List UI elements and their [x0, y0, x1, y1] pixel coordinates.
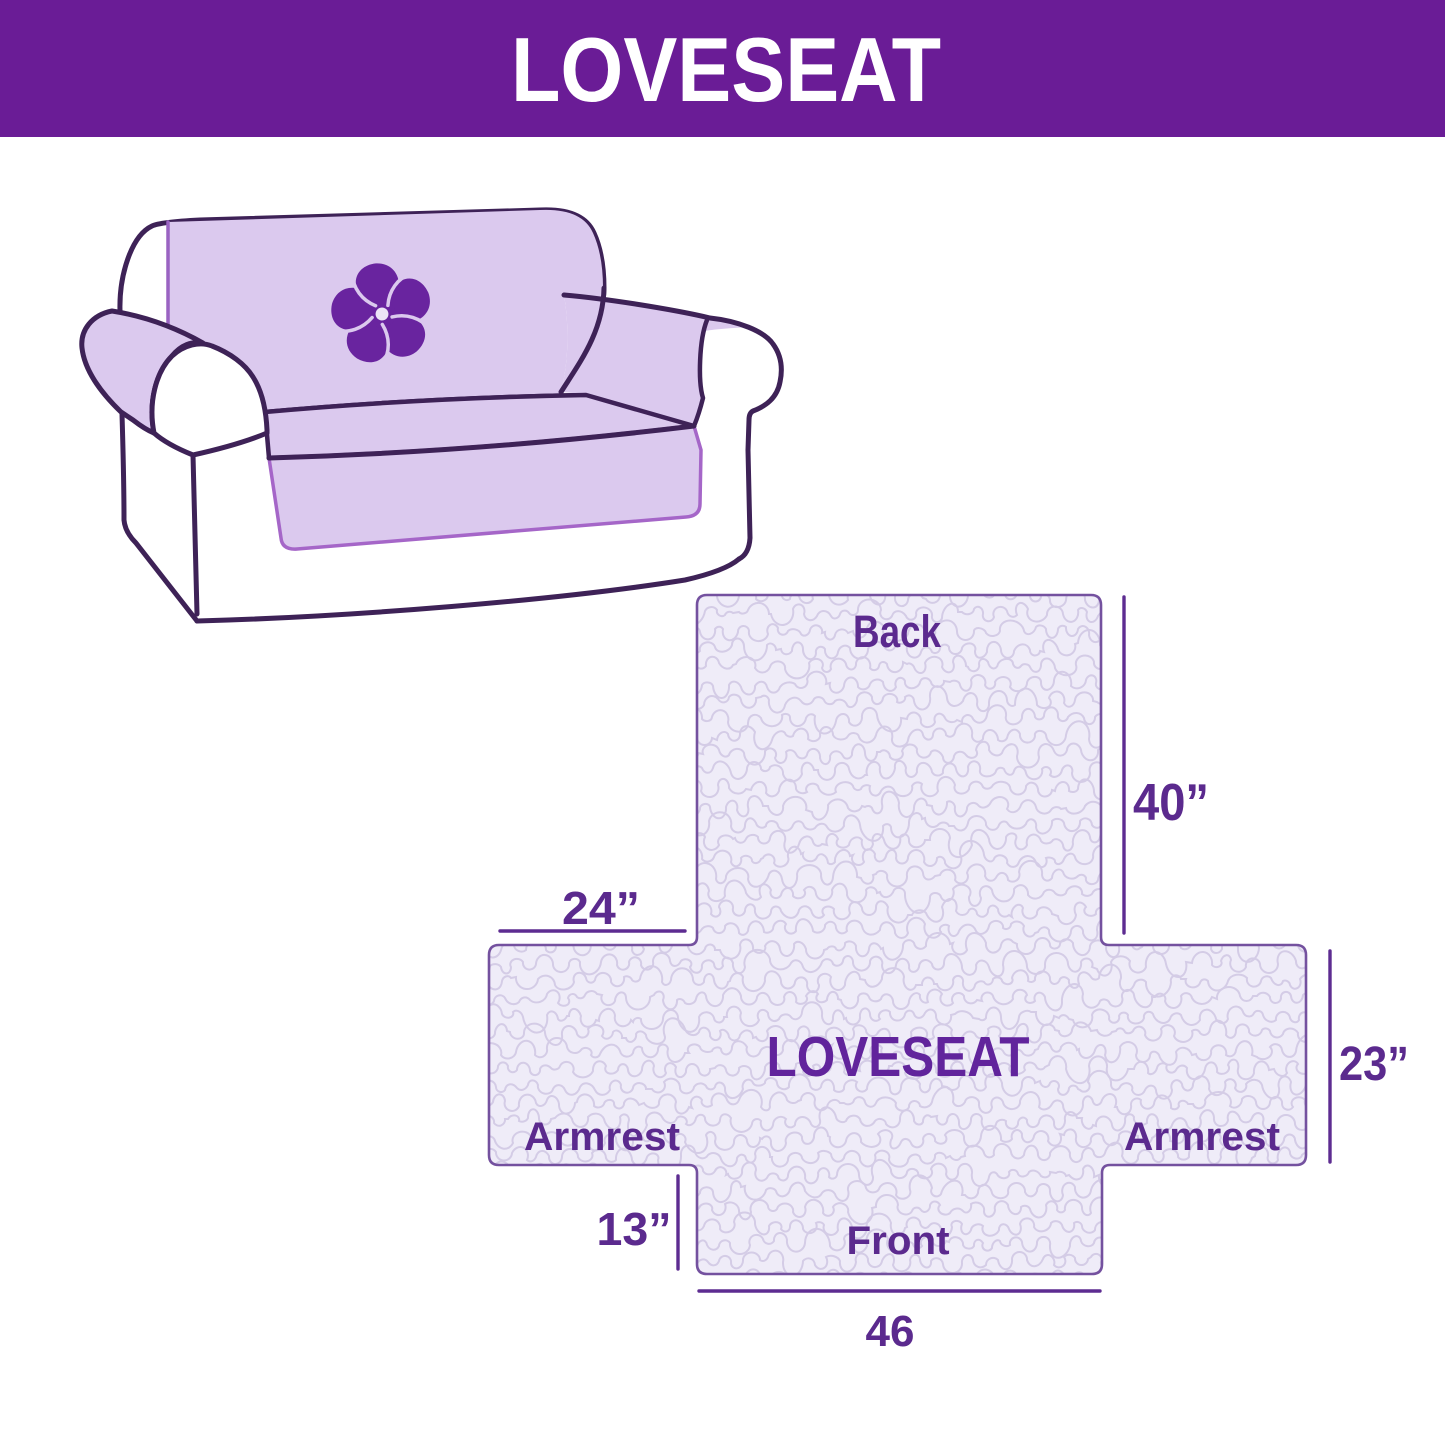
svg-text:Armrest: Armrest	[524, 1115, 680, 1159]
svg-text:40”: 40”	[1133, 774, 1209, 832]
svg-text:23”: 23”	[1339, 1038, 1409, 1091]
svg-text:LOVESEAT: LOVESEAT	[511, 20, 941, 121]
svg-text:Back: Back	[853, 606, 942, 657]
svg-text:Armrest: Armrest	[1124, 1115, 1280, 1159]
svg-text:13”: 13”	[597, 1203, 672, 1255]
svg-text:Front: Front	[847, 1219, 950, 1263]
svg-text:46: 46	[866, 1307, 915, 1356]
svg-text:LOVESEAT: LOVESEAT	[767, 1025, 1030, 1089]
svg-text:24”: 24”	[562, 882, 640, 934]
